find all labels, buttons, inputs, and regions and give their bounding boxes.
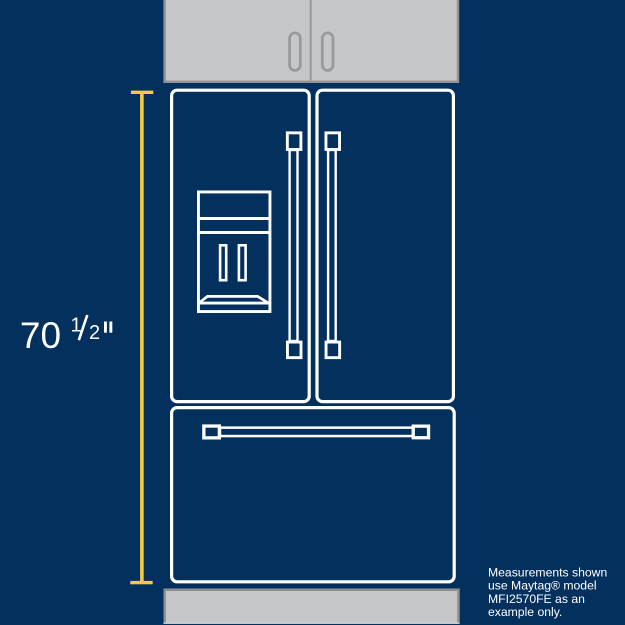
svg-text:Measurements shown: Measurements shown bbox=[488, 565, 607, 579]
svg-text:MFI2570FE as an: MFI2570FE as an bbox=[488, 592, 585, 606]
svg-text:70: 70 bbox=[20, 315, 61, 356]
svg-text:2: 2 bbox=[89, 322, 100, 344]
svg-text:use Maytag® model: use Maytag® model bbox=[488, 579, 597, 593]
svg-text:example only.: example only. bbox=[488, 605, 562, 619]
